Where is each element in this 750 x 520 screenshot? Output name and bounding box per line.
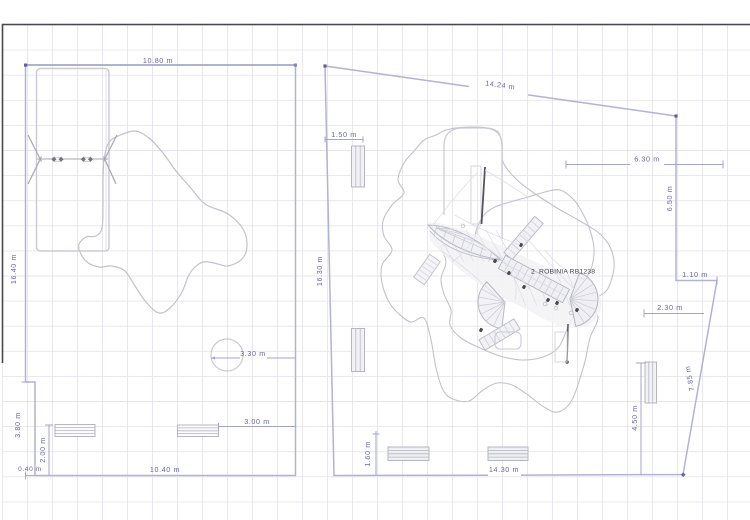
svg-text:1.60 m: 1.60 m (363, 441, 372, 467)
svg-text:4.50 m: 4.50 m (630, 405, 639, 431)
svg-text:0.40 m: 0.40 m (18, 466, 42, 473)
svg-text:2.00 m: 2.00 m (38, 437, 47, 463)
svg-text:16.30 m: 16.30 m (315, 256, 324, 286)
svg-text:6.30 m: 6.30 m (634, 155, 660, 164)
svg-text:3.30 m: 3.30 m (240, 349, 266, 358)
svg-text:10.40 m: 10.40 m (150, 465, 180, 474)
svg-text:14.30 m: 14.30 m (489, 465, 519, 474)
svg-text:6.50 m: 6.50 m (665, 186, 674, 212)
svg-text:1.10 m: 1.10 m (682, 270, 708, 279)
svg-text:16.40 m: 16.40 m (9, 254, 18, 284)
svg-text:3.00 m: 3.00 m (244, 417, 270, 426)
svg-text:2 ROBINIA RB1238: 2 ROBINIA RB1238 (531, 269, 595, 276)
svg-text:1.50 m: 1.50 m (331, 130, 357, 139)
svg-text:3.80 m: 3.80 m (13, 412, 22, 438)
svg-text:2.30 m: 2.30 m (657, 303, 683, 312)
svg-text:10.80 m: 10.80 m (143, 56, 173, 65)
